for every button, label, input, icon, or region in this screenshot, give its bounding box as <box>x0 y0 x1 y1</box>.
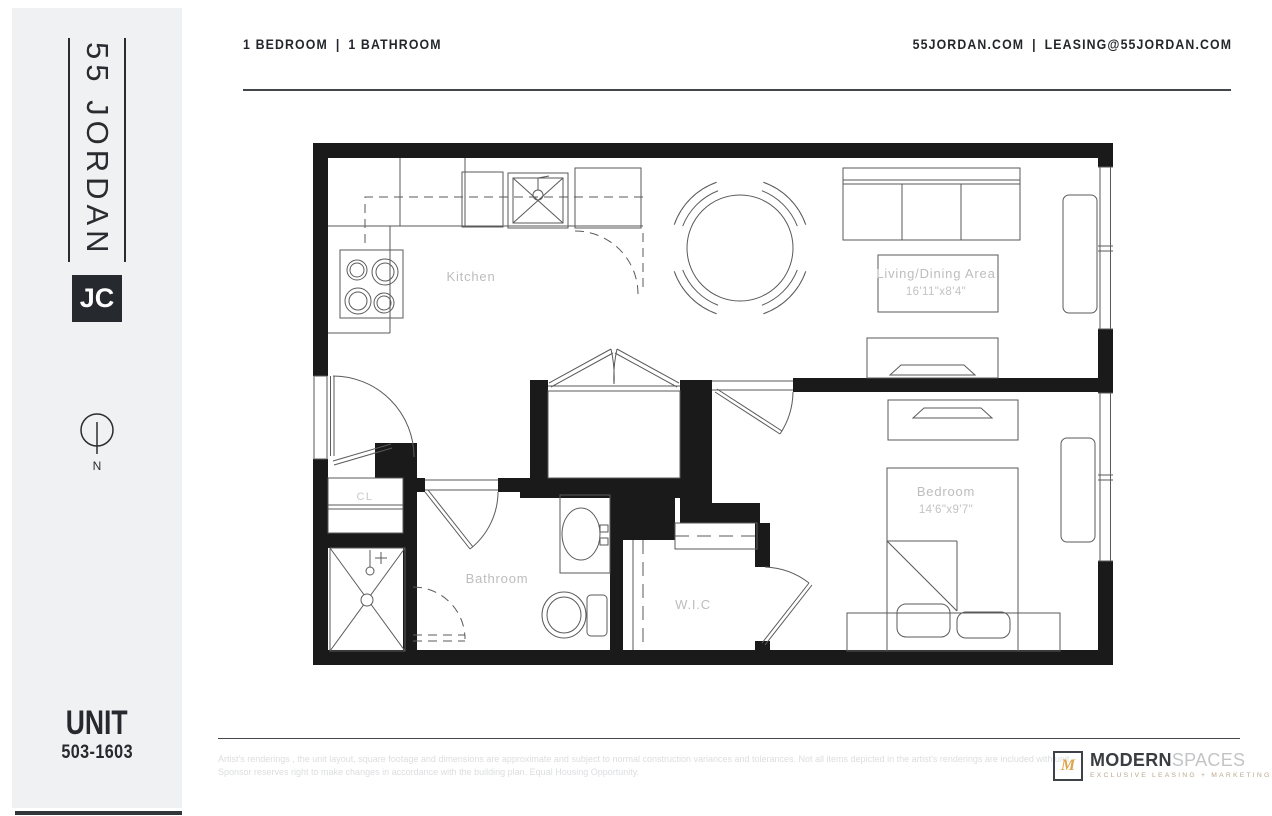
header-separator-2: | <box>1032 36 1037 52</box>
toilet <box>542 592 607 638</box>
header-bathrooms: 1 BATHROOM <box>348 36 441 52</box>
unit-number: 503-1603 <box>61 742 133 764</box>
brand-tagline: EXCLUSIVE LEASING + MARKETING <box>1090 772 1271 779</box>
closet-double-doors <box>549 349 679 387</box>
dresser-tv <box>888 400 1018 440</box>
sofa <box>843 168 1020 240</box>
kitchen-label: Kitchen <box>447 269 496 284</box>
header-bedrooms: 1 BEDROOM <box>243 36 328 52</box>
shower <box>330 548 465 651</box>
dining-table <box>669 177 810 318</box>
floorplan-sheet: 55 JORDAN JC N UNIT 503-1603 1 BEDROOM|1… <box>0 0 1272 816</box>
header-website: 55JORDAN.COM <box>912 36 1024 52</box>
wic-area: W.I.C <box>633 523 812 650</box>
brand-text: MODERNSPACES EXCLUSIVE LEASING + MARKETI… <box>1090 751 1271 779</box>
floorplan-drawing: Kitchen Living/Dining Area 16'11"x8'4" <box>313 143 1113 665</box>
bottom-divider <box>218 738 1240 739</box>
pillow <box>897 604 950 637</box>
bathroom-door <box>425 480 498 549</box>
vanity-sink <box>560 495 610 573</box>
pillow <box>957 612 1010 638</box>
bathroom-label: Bathroom <box>466 571 529 586</box>
disclaimer-line-1: Artist's renderings , the unit layout, s… <box>218 753 1072 766</box>
living-label: Living/Dining Area <box>876 266 995 281</box>
living-dimensions: 16'11"x8'4" <box>906 286 966 298</box>
disclaimer-line-2: Sponsor reserves right to make changes i… <box>218 766 1072 779</box>
unit-label: UNIT <box>66 706 128 740</box>
header-unit-type: 1 BEDROOM|1 BATHROOM <box>243 36 442 52</box>
sidebar: 55 JORDAN JC N UNIT 503-1603 <box>12 8 182 808</box>
modern-spaces-mark-icon: M <box>1053 751 1083 781</box>
stove <box>340 250 403 318</box>
area-rug <box>878 255 998 312</box>
window-seat-living <box>1063 195 1097 313</box>
walls <box>313 143 1113 665</box>
brand-name-bold: MODERN <box>1090 750 1172 770</box>
central-closet <box>548 349 680 478</box>
header-contact: 55JORDAN.COM|LEASING@55JORDAN.COM <box>912 36 1232 52</box>
building-logo: 55 JORDAN <box>68 38 126 262</box>
modern-spaces-logo: M MODERNSPACES EXCLUSIVE LEASING + MARKE… <box>1053 751 1271 781</box>
kitchen-area: Kitchen <box>328 158 643 333</box>
window-bedroom <box>1098 393 1113 561</box>
upper-cabinets-dashed <box>365 197 643 247</box>
cl-label: CL <box>356 491 373 503</box>
bedroom-label: Bedroom <box>917 484 975 499</box>
refrigerator <box>575 168 643 294</box>
wic-door <box>762 567 812 645</box>
header-email: LEASING@55JORDAN.COM <box>1044 36 1232 52</box>
brand-name-light: SPACES <box>1172 750 1246 770</box>
kitchen-sink <box>508 173 568 228</box>
unit-block: UNIT 503-1603 <box>12 706 182 764</box>
header-separator: | <box>336 36 341 52</box>
sidebar-bottom-bar <box>15 811 182 815</box>
compass-icon: N <box>75 410 119 476</box>
bathroom-area: Bathroom <box>425 480 610 638</box>
window-seat-bedroom <box>1061 438 1095 542</box>
jc-badge: JC <box>72 275 122 322</box>
disclaimer: Artist's renderings , the unit layout, s… <box>218 753 1072 779</box>
living-dining-area: Living/Dining Area 16'11"x8'4" <box>669 168 1097 378</box>
wic-label: W.I.C <box>675 597 711 612</box>
top-divider <box>243 89 1231 91</box>
bedroom-door <box>712 381 793 434</box>
compass-north-label: N <box>93 459 102 473</box>
tv-console-living <box>867 338 998 378</box>
bedroom-dimensions: 14'6"x9'7" <box>919 504 973 516</box>
bedroom-area: Bedroom 14'6"x9'7" <box>712 381 1095 651</box>
window-living <box>1098 167 1113 329</box>
shower-door-swing <box>413 587 465 639</box>
